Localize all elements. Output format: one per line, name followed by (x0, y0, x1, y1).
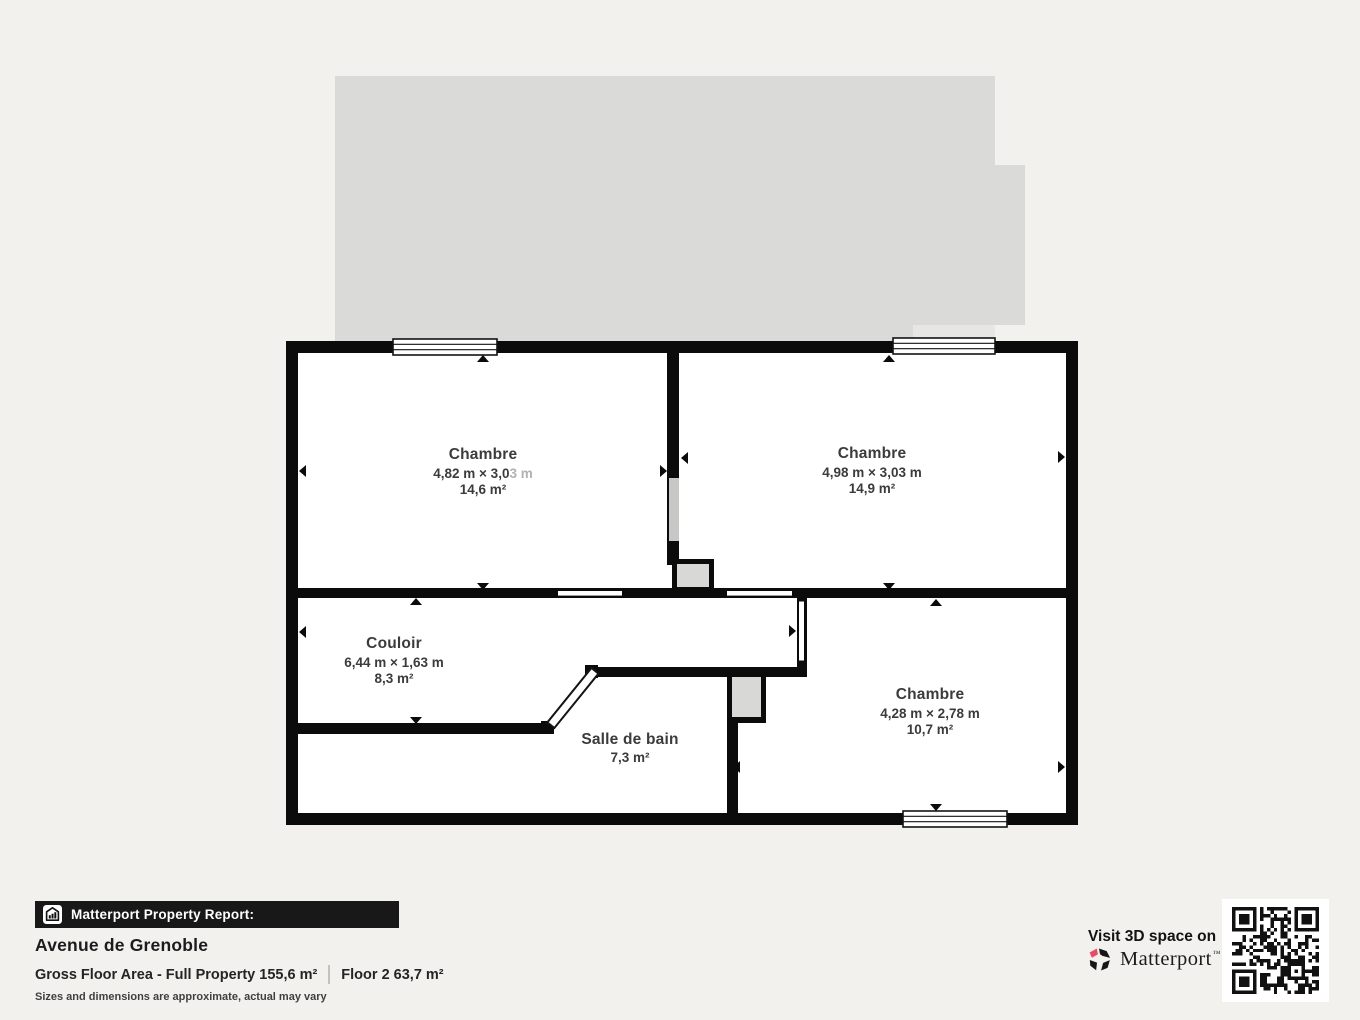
gross-floor-area: Gross Floor Area - Full Property 155,6 m… (35, 967, 317, 983)
report-title-bar: Matterport Property Report: (35, 901, 399, 928)
trademark-symbol: ™ (1213, 949, 1221, 958)
qr-code (1232, 907, 1319, 994)
window-bottom-right (903, 811, 1007, 827)
window-top-right (893, 338, 995, 354)
report-bar-label: Matterport Property Report: (71, 907, 254, 922)
property-address: Avenue de Grenoble (35, 935, 208, 956)
door-opening-gray (669, 478, 679, 541)
floor-area: Floor 2 63,7 m² (341, 967, 443, 983)
divider (328, 965, 330, 984)
floor-plan-svg (0, 0, 1360, 1020)
matterport-logo-icon (1086, 946, 1113, 973)
visit-3d-label: Visit 3D space on (1088, 928, 1216, 946)
floor-area-row: Gross Floor Area - Full Property 155,6 m… (35, 965, 444, 984)
matterport-wordmark: Matterport™ (1120, 948, 1221, 971)
matterport-brand-row: Matterport™ (1086, 946, 1221, 973)
disclaimer-text: Sizes and dimensions are approximate, ac… (35, 991, 327, 1003)
matterport-floorplan-page: Chambre 4,82 m × 3,03 m 14,6 m² Chambre … (0, 0, 1360, 1020)
property-report-house-icon (43, 905, 62, 924)
qr-card (1222, 899, 1329, 1002)
window-top-left (393, 339, 497, 355)
upper-floor-silhouette (335, 76, 1025, 342)
